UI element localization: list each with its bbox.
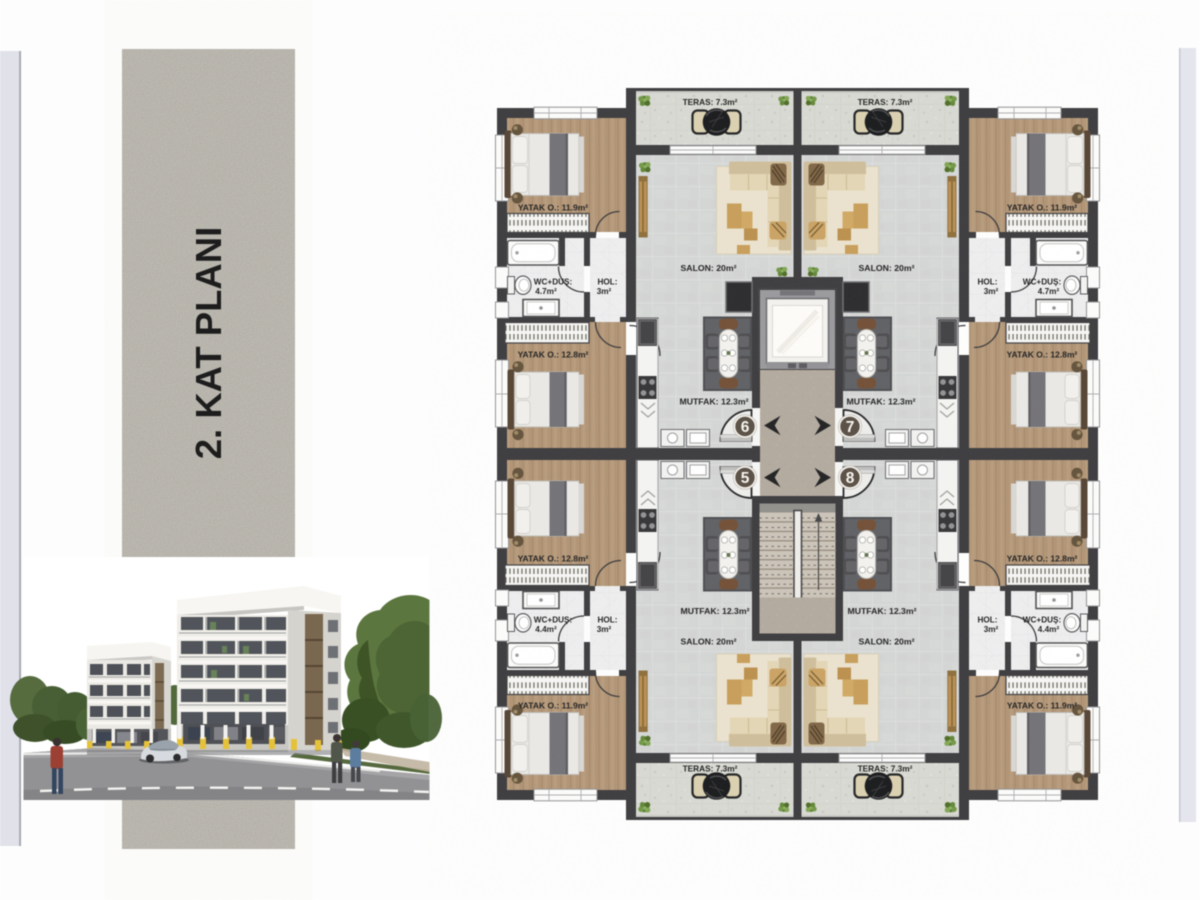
- svg-text:MUTFAK: 12.3m²: MUTFAK: 12.3m²: [847, 606, 916, 616]
- svg-text:YATAK O.: 11.9m²: YATAK O.: 11.9m²: [518, 203, 588, 213]
- svg-text:HOL:: HOL:: [597, 616, 617, 625]
- svg-text:SALON: 20m²: SALON: 20m²: [681, 637, 737, 647]
- svg-text:TERAS: 7.3m²: TERAS: 7.3m²: [858, 97, 913, 107]
- svg-text:HOL:: HOL:: [977, 616, 997, 625]
- svg-text:YATAK O.: 11.9m²: YATAK O.: 11.9m²: [1007, 203, 1077, 213]
- svg-text:WC+DUŞ:: WC+DUŞ:: [1023, 616, 1061, 625]
- svg-text:MUTFAK: 12.3m²: MUTFAK: 12.3m²: [679, 397, 748, 407]
- svg-text:TERAS: 7.3m²: TERAS: 7.3m²: [683, 97, 738, 107]
- svg-text:3m²: 3m²: [597, 287, 612, 296]
- svg-text:4.7m²: 4.7m²: [1038, 287, 1060, 296]
- svg-text:HOL:: HOL:: [597, 278, 617, 287]
- svg-text:3m²: 3m²: [984, 625, 999, 634]
- svg-text:YATAK O.: 12.8m²: YATAK O.: 12.8m²: [1007, 350, 1078, 360]
- svg-text:SALON: 20m²: SALON: 20m²: [859, 637, 915, 647]
- svg-text:WC+DUŞ:: WC+DUŞ:: [1023, 278, 1061, 287]
- svg-text:YATAK O.: 12.8m²: YATAK O.: 12.8m²: [518, 554, 589, 564]
- svg-text:TERAS: 7.3m²: TERAS: 7.3m²: [858, 764, 913, 774]
- svg-text:YATAK O.: 12.8m²: YATAK O.: 12.8m²: [1007, 554, 1078, 564]
- svg-text:MUTFAK: 12.3m²: MUTFAK: 12.3m²: [846, 397, 915, 407]
- svg-text:WC+DUŞ:: WC+DUŞ:: [534, 616, 572, 625]
- svg-text:SALON: 20m²: SALON: 20m²: [859, 263, 915, 273]
- svg-text:YATAK O.: 11.9m²: YATAK O.: 11.9m²: [518, 701, 588, 711]
- svg-text:2. KAT PLANI: 2. KAT PLANI: [188, 227, 229, 460]
- svg-text:WC+DUŞ:: WC+DUŞ:: [534, 278, 572, 287]
- svg-text:YATAK O.: 11.9m²: YATAK O.: 11.9m²: [1007, 701, 1077, 711]
- svg-text:MUTFAK: 12.3m²: MUTFAK: 12.3m²: [680, 606, 749, 616]
- svg-text:4.7m²: 4.7m²: [535, 287, 557, 296]
- svg-text:4.4m²: 4.4m²: [1038, 625, 1060, 634]
- svg-text:4.4m²: 4.4m²: [535, 625, 557, 634]
- svg-text:SALON: 20m²: SALON: 20m²: [681, 263, 737, 273]
- svg-text:HOL:: HOL:: [977, 278, 997, 287]
- svg-text:3m²: 3m²: [984, 287, 999, 296]
- svg-text:TERAS: 7.3m²: TERAS: 7.3m²: [683, 764, 738, 774]
- svg-text:3m²: 3m²: [597, 625, 612, 634]
- svg-text:YATAK O.: 12.8m²: YATAK O.: 12.8m²: [518, 350, 589, 360]
